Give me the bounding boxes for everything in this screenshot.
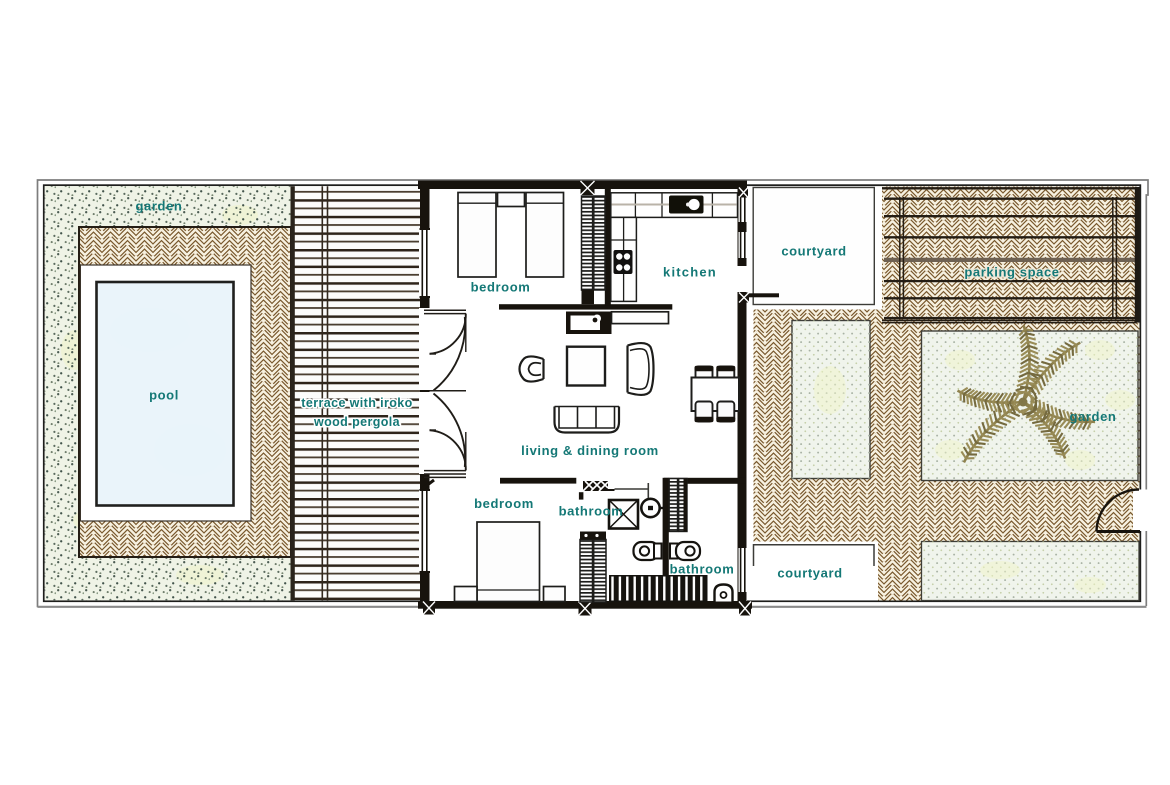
svg-text:bathroom: bathroom bbox=[559, 504, 624, 519]
svg-text:pool: pool bbox=[149, 388, 179, 403]
svg-text:wood pergola: wood pergola bbox=[313, 415, 401, 429]
svg-text:garden: garden bbox=[1070, 409, 1117, 424]
svg-text:courtyard: courtyard bbox=[777, 566, 842, 581]
svg-text:parking space: parking space bbox=[964, 265, 1059, 280]
svg-text:garden: garden bbox=[136, 199, 183, 214]
svg-text:courtyard: courtyard bbox=[781, 244, 846, 259]
svg-text:bedroom: bedroom bbox=[474, 496, 534, 511]
svg-text:living & dining room: living & dining room bbox=[521, 443, 659, 458]
svg-text:terrace with iroko: terrace with iroko bbox=[301, 396, 412, 410]
svg-text:kitchen: kitchen bbox=[663, 265, 717, 280]
svg-text:bathroom: bathroom bbox=[670, 562, 735, 577]
svg-text:bedroom: bedroom bbox=[471, 280, 531, 295]
